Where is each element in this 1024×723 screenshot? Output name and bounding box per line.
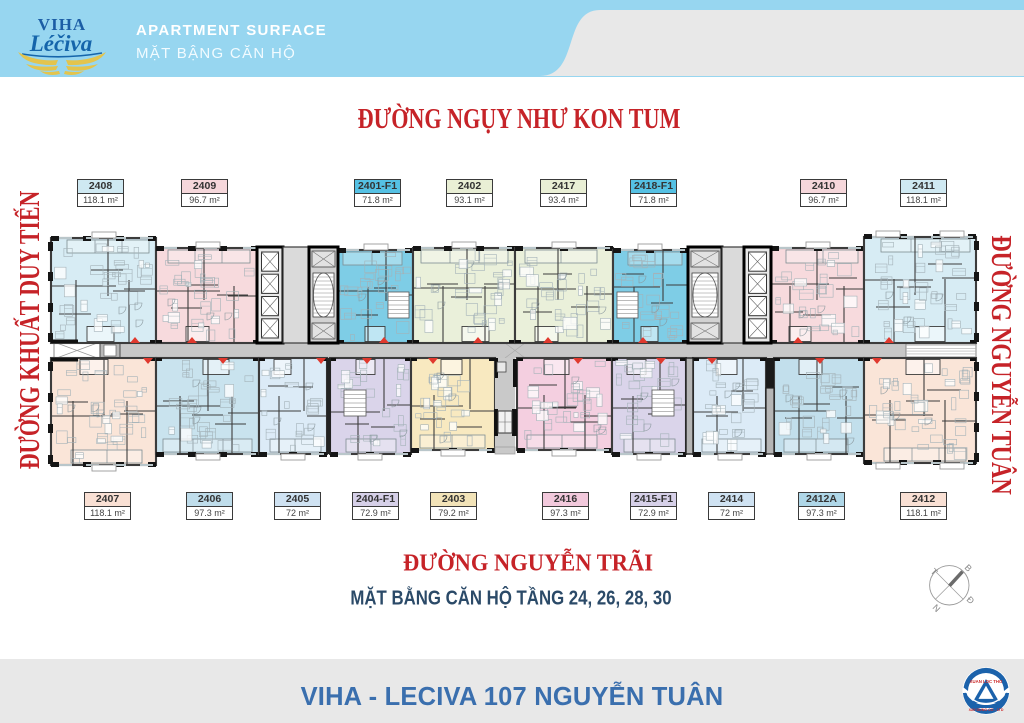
svg-text:XUAN LOC THO: XUAN LOC THO (970, 679, 1003, 684)
svg-text:T: T (929, 566, 940, 577)
svg-text:Đ: Đ (965, 594, 977, 606)
svg-text:XAY DUNG CO - LTD: XAY DUNG CO - LTD (969, 708, 1004, 712)
svg-text:N: N (931, 602, 943, 614)
